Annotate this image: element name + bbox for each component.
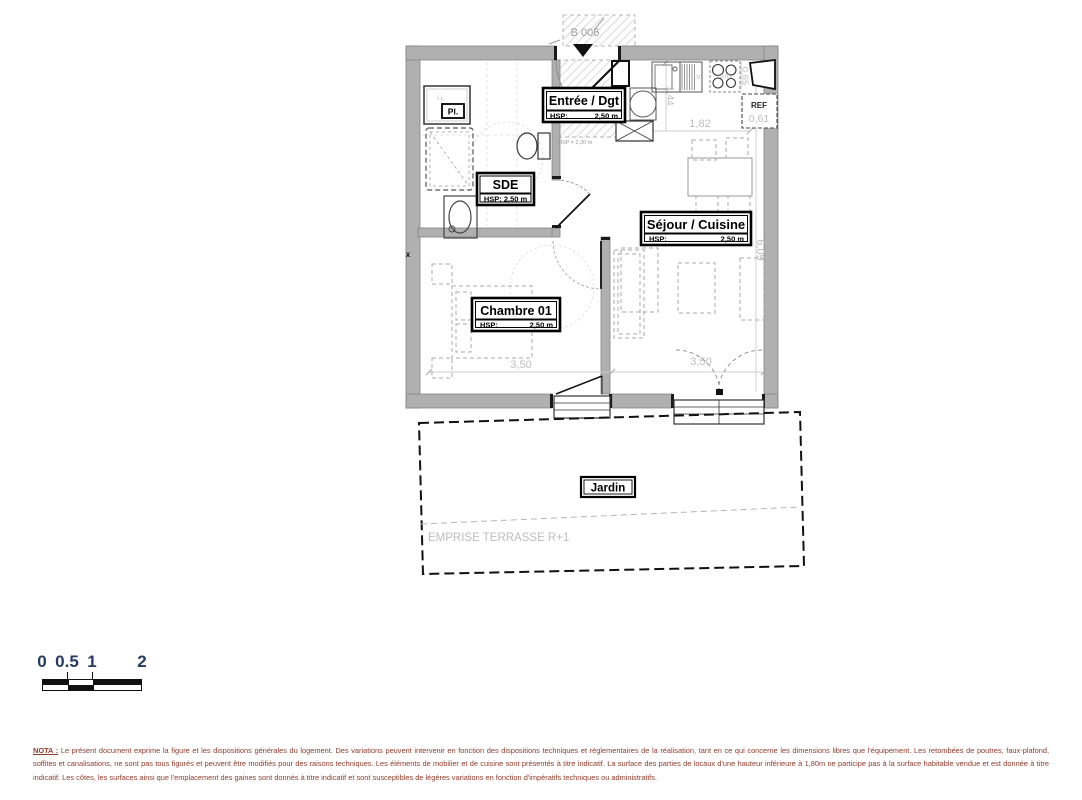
chair bbox=[692, 140, 716, 160]
sde-fixtures bbox=[422, 62, 550, 238]
dim-fridge-width: 0,61 bbox=[749, 113, 770, 125]
unit-label: B 006 bbox=[571, 27, 600, 39]
tv-unit bbox=[740, 258, 764, 320]
label-sejour: Séjour / Cuisine HSP: 2,50 m bbox=[641, 212, 751, 245]
fridge-label: REF bbox=[751, 101, 767, 110]
coffee-table bbox=[678, 263, 715, 313]
closet-label: Pl. bbox=[448, 107, 458, 117]
label-sde: SDE HSP: 2,50 m bbox=[477, 173, 534, 205]
shower bbox=[426, 128, 473, 190]
hob-label: CUIS bbox=[718, 74, 732, 80]
toilet-bowl bbox=[517, 133, 537, 159]
dim-bedroom-width: 3,50 bbox=[510, 359, 531, 371]
terrace-note: EMPRISE TERRASSE R+1 bbox=[428, 532, 569, 544]
floor-plan: x LL bbox=[0, 0, 1082, 630]
water-heater bbox=[630, 91, 656, 117]
entry-soffit-note: HSP = 2,30 m bbox=[558, 140, 593, 146]
scale-label-1: 1 bbox=[87, 652, 96, 672]
sde-door-leaf bbox=[556, 194, 590, 228]
chambre-window-frame bbox=[554, 396, 610, 418]
dim-living-length: 6,09 bbox=[754, 239, 766, 260]
label-chambre: Chambre 01 HSP: 2,50 m bbox=[472, 298, 560, 331]
room-name: Séjour / Cuisine bbox=[647, 217, 745, 232]
scale-tick bbox=[92, 672, 93, 679]
hsp-value: 2,50 m bbox=[595, 112, 619, 121]
scale-label-2: 2 bbox=[137, 652, 146, 672]
chambre-window-leaf bbox=[556, 376, 602, 394]
scale-label-0: 0 bbox=[37, 652, 46, 672]
label-jardin: Jardin bbox=[581, 477, 635, 497]
dim-kitchen-return: 1,44 bbox=[664, 86, 675, 106]
dining-table bbox=[688, 158, 752, 196]
entrance-arrow-icon bbox=[573, 44, 593, 57]
chair bbox=[726, 138, 748, 158]
scale-tick bbox=[67, 672, 68, 679]
sde-door-swing bbox=[556, 180, 590, 194]
dim-hob-width: 0,65 bbox=[739, 67, 750, 86]
dim-kitchen-width: 1,82 bbox=[689, 118, 710, 130]
label-placard: Pl. bbox=[442, 104, 464, 118]
nightstand bbox=[432, 358, 452, 378]
water-heater-niche bbox=[630, 88, 656, 120]
hsp-label: HSP: bbox=[480, 321, 498, 330]
hsp-label: HSP: bbox=[550, 112, 568, 121]
scale-label-05: 0.5 bbox=[55, 652, 79, 672]
hsp-text: HSP: 2,50 m bbox=[484, 195, 528, 204]
nightstand bbox=[432, 264, 452, 284]
hsp-value: 2,50 m bbox=[721, 235, 745, 244]
room-name: Entrée / Dgt bbox=[549, 94, 620, 108]
duct-mark: x bbox=[406, 250, 411, 259]
dishwasher-label: LV bbox=[694, 75, 701, 81]
terrace-line bbox=[421, 507, 801, 524]
nota-body: Le présent document exprime la figure et… bbox=[33, 746, 1049, 782]
chambre-door-swing bbox=[553, 241, 601, 289]
nota-paragraph: NOTA : Le présent document exprime la fi… bbox=[33, 744, 1049, 784]
scale-bar bbox=[42, 679, 142, 691]
hsp-value: 2,50 m bbox=[530, 321, 554, 330]
washer-label: LL bbox=[437, 95, 445, 102]
nota-label: NOTA : bbox=[33, 746, 58, 755]
room-name: Jardin bbox=[591, 483, 626, 495]
label-entree: Entrée / Dgt HSP: 2,50 m bbox=[543, 88, 625, 122]
dim-bay-width: 3,50 bbox=[690, 356, 711, 368]
hsp-label: HSP: bbox=[649, 235, 667, 244]
room-name: SDE bbox=[493, 178, 519, 192]
room-name: Chambre 01 bbox=[480, 304, 552, 318]
shaft bbox=[750, 60, 775, 89]
toilet-tank bbox=[538, 133, 550, 159]
